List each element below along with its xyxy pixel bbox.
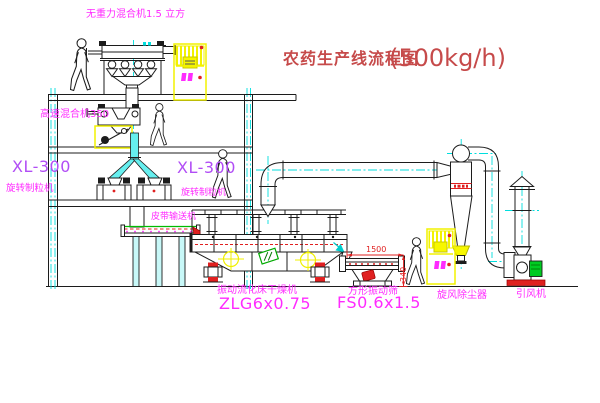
person-figure [150, 104, 166, 146]
dimension-text-1500: 1500 [366, 246, 386, 254]
label-gravity-mixer: 无重力混合机1.5 立方 [86, 10, 185, 20]
granulator-left-machine [97, 178, 131, 201]
label-granulator-left-name: 旋转制粒机 [6, 184, 54, 194]
indicator-light [200, 46, 204, 50]
label-dryer-model: ZLG6x0.75 [219, 296, 311, 312]
cyclone-top-outlet [453, 145, 470, 162]
granulator-right-machine [137, 178, 171, 201]
label-fan: 引风机 [516, 290, 546, 300]
label-sieve-model: FS0.6x1.5 [337, 295, 421, 311]
label-granulator-right-model: XL-300 [177, 160, 236, 176]
label-belt-conveyor: 皮带输送机 [151, 213, 196, 222]
granulators [97, 133, 171, 200]
dryer-posts [207, 215, 339, 235]
duct-reducer [437, 163, 452, 178]
down-pipe [131, 133, 139, 160]
conveyor-leg [156, 237, 162, 287]
page-title-capacity: (500kg/h) [389, 46, 506, 70]
exhaust-duct [256, 156, 472, 224]
indicator-mark [181, 73, 187, 81]
person-figure [71, 39, 91, 91]
fan-base [507, 280, 545, 286]
feed-chute [130, 207, 144, 228]
person-figure [406, 238, 424, 285]
indicator-mark [188, 73, 194, 81]
control-cabinet-2 [427, 229, 455, 284]
induced-draft-fan [504, 253, 545, 286]
conveyor-leg [179, 237, 185, 287]
rail-ticks [205, 210, 341, 215]
indicator-light [447, 263, 451, 267]
label-high-speed-mixer: 高速混合机350 [40, 110, 109, 120]
cyan-marker [148, 42, 151, 46]
label-granulator-right-name: 旋转制粒机 [181, 189, 226, 198]
indicator-light [448, 234, 452, 238]
y-branch-left [109, 159, 136, 178]
cyan-marker [143, 42, 146, 46]
dimension-text-340: 340 [400, 267, 408, 282]
stack-cap [511, 177, 534, 187]
cabinet-panel [434, 242, 447, 252]
indicator-mark [434, 261, 440, 269]
fluid-bed-dryer [190, 210, 353, 282]
mixer-discharge-cones [107, 61, 157, 77]
label-granulator-left-model: XL-300 [12, 159, 71, 175]
y-branch-right [133, 159, 160, 178]
process-flow-diagram: 农药生产线流程图 (500kg/h) 无重力混合机1.5 立方 高速混合机350… [0, 0, 600, 403]
indicator-mark [441, 261, 447, 269]
sieve-motor [362, 270, 376, 282]
control-cabinet-1 [174, 44, 206, 100]
conveyor-leg [133, 237, 139, 287]
label-cyclone: 旋风除尘器 [437, 291, 487, 301]
motor-pulley [101, 136, 109, 144]
outlet-pipe [468, 147, 518, 268]
belt-dots [126, 231, 192, 233]
indicator-light [198, 76, 202, 80]
